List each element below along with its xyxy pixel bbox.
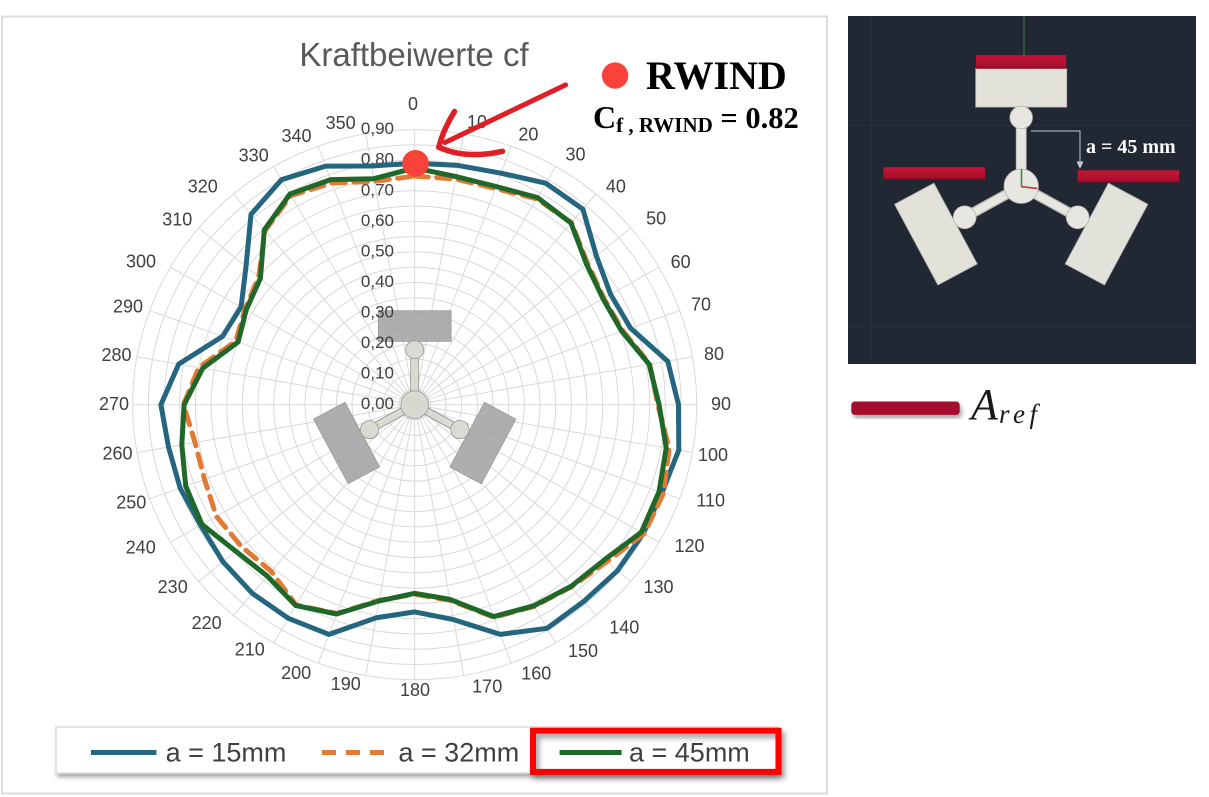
svg-text:310: 310 bbox=[162, 209, 192, 229]
svg-text:160: 160 bbox=[521, 664, 551, 684]
svg-text:210: 210 bbox=[235, 639, 265, 659]
svg-text:0,60: 0,60 bbox=[361, 211, 394, 230]
svg-text:a = 32mm: a = 32mm bbox=[398, 738, 519, 768]
svg-text:240: 240 bbox=[126, 538, 156, 558]
svg-text:0: 0 bbox=[408, 94, 418, 114]
svg-text:330: 330 bbox=[239, 146, 269, 166]
svg-text:20: 20 bbox=[518, 125, 538, 145]
svg-text:70: 70 bbox=[691, 295, 711, 315]
svg-text:250: 250 bbox=[116, 493, 146, 513]
svg-text:ref: ref bbox=[999, 399, 1042, 429]
svg-text:60: 60 bbox=[671, 252, 691, 272]
svg-text:0,10: 0,10 bbox=[361, 364, 394, 383]
svg-text:0,50: 0,50 bbox=[361, 241, 394, 260]
svg-text:120: 120 bbox=[674, 536, 704, 556]
svg-text:a = 15mm: a = 15mm bbox=[166, 738, 287, 768]
svg-text:190: 190 bbox=[331, 674, 361, 694]
svg-text:90: 90 bbox=[711, 394, 731, 414]
svg-text:150: 150 bbox=[568, 641, 598, 661]
svg-text:280: 280 bbox=[101, 345, 131, 365]
svg-text:350: 350 bbox=[326, 113, 356, 133]
svg-text:180: 180 bbox=[400, 680, 430, 700]
svg-text:0,90: 0,90 bbox=[361, 119, 394, 138]
svg-text:300: 300 bbox=[126, 252, 156, 272]
svg-text:320: 320 bbox=[188, 177, 218, 197]
svg-text:130: 130 bbox=[643, 577, 673, 597]
svg-text:260: 260 bbox=[102, 444, 132, 464]
svg-text:0,40: 0,40 bbox=[361, 272, 394, 291]
svg-text:100: 100 bbox=[698, 445, 728, 465]
svg-text:40: 40 bbox=[606, 177, 626, 197]
svg-text:80: 80 bbox=[704, 344, 724, 364]
svg-text:RWIND: RWIND bbox=[646, 53, 787, 98]
svg-text:0,00: 0,00 bbox=[361, 394, 394, 413]
svg-text:200: 200 bbox=[281, 663, 311, 683]
svg-text:110: 110 bbox=[696, 491, 725, 511]
svg-text:0,20: 0,20 bbox=[361, 333, 394, 352]
svg-text:230: 230 bbox=[158, 577, 188, 597]
svg-text:A: A bbox=[968, 380, 999, 429]
svg-text:50: 50 bbox=[646, 209, 666, 229]
svg-text:170: 170 bbox=[472, 676, 502, 696]
svg-text:a = 45mm: a = 45mm bbox=[629, 738, 750, 768]
svg-text:340: 340 bbox=[281, 126, 311, 146]
svg-text:290: 290 bbox=[113, 297, 143, 317]
svg-text:30: 30 bbox=[565, 145, 585, 165]
svg-text:0,30: 0,30 bbox=[361, 303, 394, 322]
svg-text:270: 270 bbox=[99, 394, 129, 414]
svg-text:140: 140 bbox=[609, 618, 639, 638]
svg-text:Kraftbeiwerte cf: Kraftbeiwerte cf bbox=[299, 36, 529, 73]
svg-text:220: 220 bbox=[192, 613, 222, 633]
svg-text:a = 45 mm: a = 45 mm bbox=[1086, 136, 1176, 158]
